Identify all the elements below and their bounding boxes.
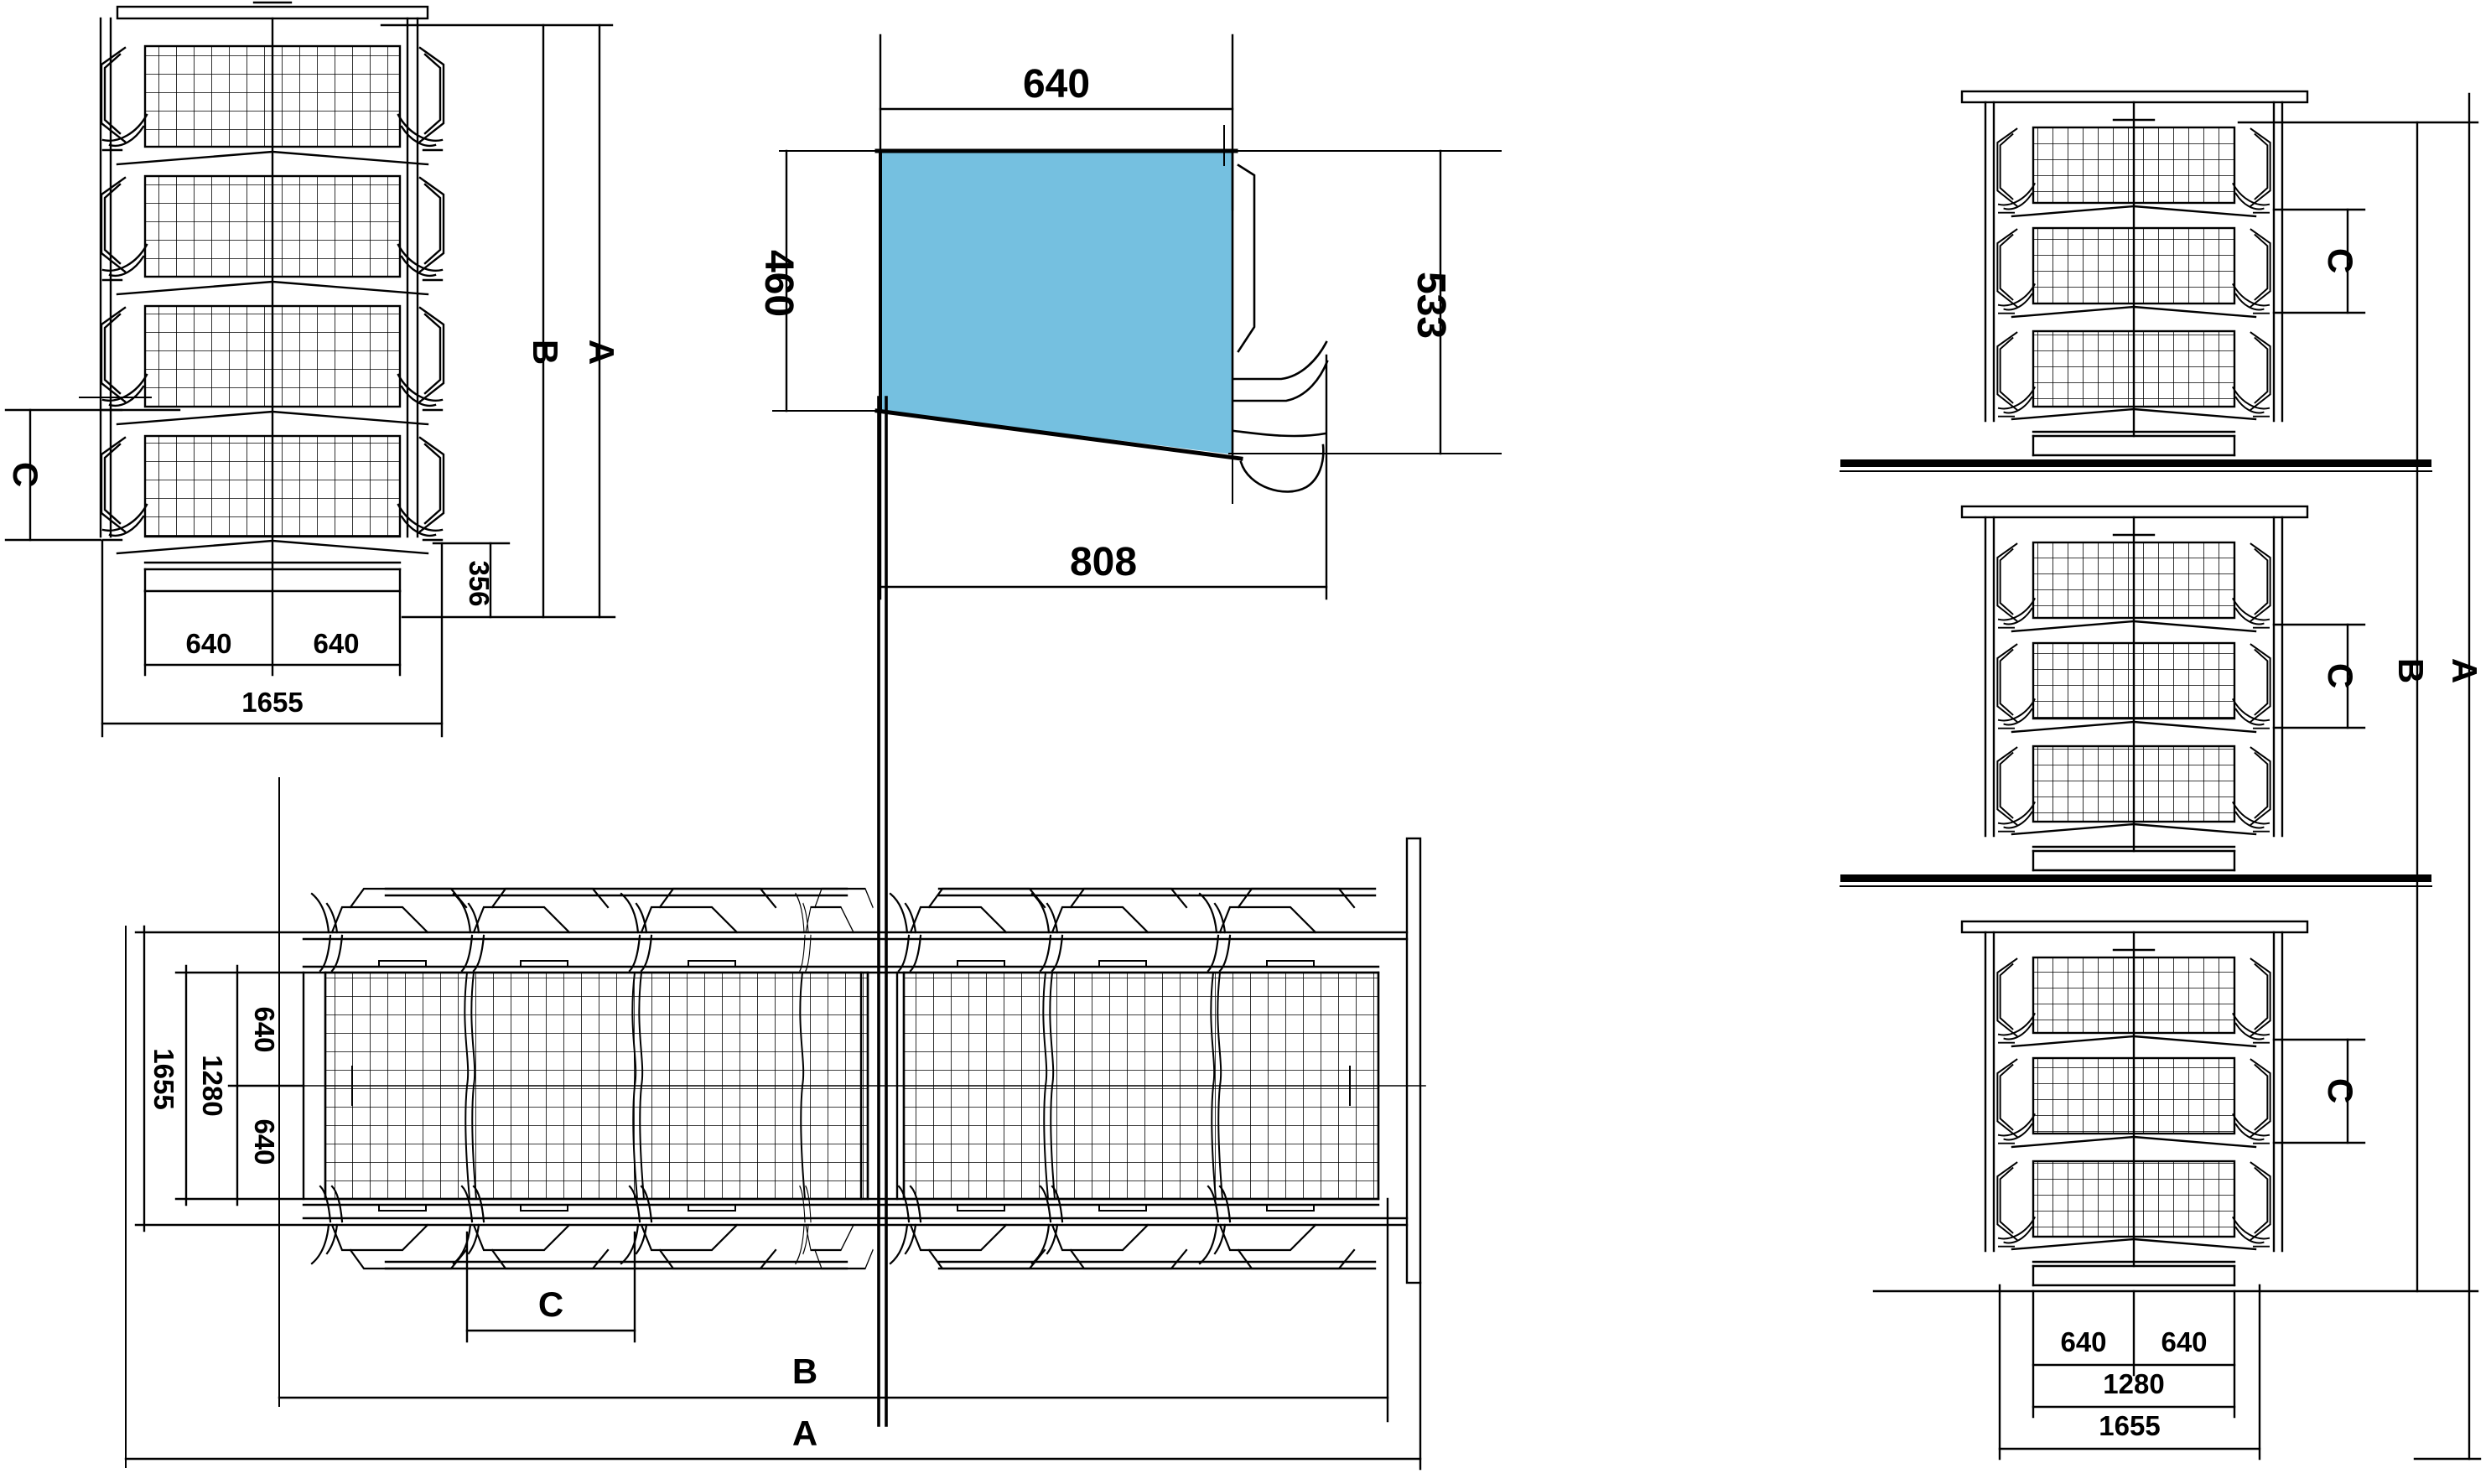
cage-top-cap xyxy=(117,7,428,18)
dim-label-c3: C xyxy=(2321,1078,2360,1103)
dim-label-1655: 1655 xyxy=(2099,1410,2160,1441)
plan-view: 1655 1280 640 640 C B A xyxy=(80,397,1425,1469)
cross-section-view: 640 460 533 808 xyxy=(756,35,1501,599)
dimension-356: 356 xyxy=(433,543,509,736)
dim-label-640-top: 640 xyxy=(249,1006,280,1052)
row-end-frame xyxy=(1407,838,1420,1283)
dim-label-c: C xyxy=(538,1284,563,1324)
dim-label-a: A xyxy=(2445,658,2484,683)
cage-unit-top xyxy=(1962,91,2307,455)
cross-section-highlight xyxy=(880,151,1233,454)
dim-label-640: 640 xyxy=(1023,62,1090,106)
dim-label-c: C xyxy=(6,462,45,487)
dim-label-640-left: 640 xyxy=(2060,1326,2106,1357)
cage-unit-middle xyxy=(1962,506,2307,870)
dim-label-640-left: 640 xyxy=(185,628,231,659)
dim-label-640-bottom: 640 xyxy=(249,1118,280,1165)
dimension-533: 533 xyxy=(1229,151,1501,454)
dimension-640-pair: 640 640 xyxy=(145,569,400,675)
dim-label-a: A xyxy=(792,1414,817,1453)
center-divider xyxy=(879,397,886,1425)
dim-label-460: 460 xyxy=(756,250,801,317)
mesh-panel xyxy=(145,46,400,147)
dim-label-1280: 1280 xyxy=(197,1055,228,1116)
dim-label-c2: C xyxy=(2321,663,2360,688)
dim-label-1280: 1280 xyxy=(2103,1368,2164,1399)
dim-label-640-right: 640 xyxy=(313,628,359,659)
mesh-panel xyxy=(145,176,400,277)
dim-label-640-right: 640 xyxy=(2161,1326,2207,1357)
floor-slab xyxy=(1840,874,2431,882)
dimension-460: 460 xyxy=(756,151,882,411)
stacked-elevation-view: C C C B A 640 64 xyxy=(1840,91,2484,1459)
dimension-c-middle: C xyxy=(2274,625,2364,728)
dimension-b-plan: B xyxy=(279,1199,1388,1421)
dimension-c-bottom: C xyxy=(2274,1040,2364,1143)
feed-trough-profile xyxy=(1234,165,1327,491)
front-elevation-view: C B A 356 640 640 xyxy=(6,3,621,736)
dimension-b-a-right: B A xyxy=(2239,94,2484,1459)
feed-trough-band-top xyxy=(312,889,1375,971)
floor-slab xyxy=(1840,459,2431,467)
mesh-panel xyxy=(145,436,400,537)
dimension-c-plan: C xyxy=(467,1232,635,1341)
dim-label-808: 808 xyxy=(1070,540,1137,584)
dimension-rows-bottom: 640 640 1280 1655 xyxy=(2000,1285,2260,1459)
dim-label-c1: C xyxy=(2321,248,2360,273)
dim-label-b: B xyxy=(526,340,565,365)
mesh-panel xyxy=(145,306,400,407)
technical-drawing: C B A 356 640 640 xyxy=(0,0,2491,1484)
dim-label-1655: 1655 xyxy=(241,687,303,718)
cage-unit-bottom xyxy=(1962,921,2307,1285)
dim-label-356: 356 xyxy=(464,560,495,606)
drawing-sheet: C B A 356 640 640 xyxy=(0,0,2491,1484)
dimension-c-top: C xyxy=(2274,210,2364,313)
dim-label-1655: 1655 xyxy=(148,1048,179,1109)
dim-label-533: 533 xyxy=(1409,272,1453,339)
dimension-a-plan: A xyxy=(126,1283,1420,1469)
dim-label-b: B xyxy=(792,1352,817,1391)
dim-label-a: A xyxy=(582,340,621,365)
dim-label-b: B xyxy=(2391,658,2431,683)
